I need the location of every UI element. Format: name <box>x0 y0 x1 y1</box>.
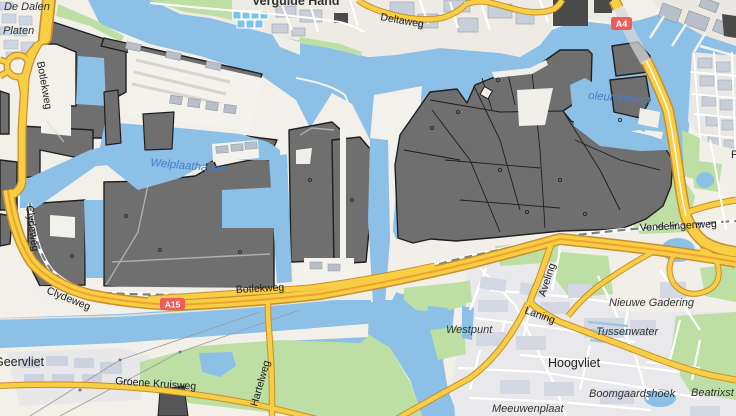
svg-text:Hoogvliet: Hoogvliet <box>548 356 601 370</box>
svg-text:Tussenwater: Tussenwater <box>596 326 659 338</box>
svg-text:Platen: Platen <box>3 25 34 37</box>
svg-text:A4: A4 <box>616 19 628 29</box>
svg-text:Nieuwe Gadering: Nieuwe Gadering <box>609 297 695 309</box>
svg-text:Westpunt: Westpunt <box>446 324 493 336</box>
svg-text:Boomgaardshoek: Boomgaardshoek <box>589 388 676 400</box>
svg-text:Vergulde Hand: Vergulde Hand <box>252 0 340 8</box>
svg-text:Beatrixst: Beatrixst <box>691 387 735 399</box>
svg-text:Meeuwenplaat: Meeuwenplaat <box>492 403 564 415</box>
svg-text:Geervliet: Geervliet <box>0 355 45 369</box>
svg-text:De Dalen: De Dalen <box>4 1 50 13</box>
svg-text:Botlekweg: Botlekweg <box>236 281 285 296</box>
svg-text:A15: A15 <box>165 300 181 310</box>
svg-text:P: P <box>731 149 736 161</box>
